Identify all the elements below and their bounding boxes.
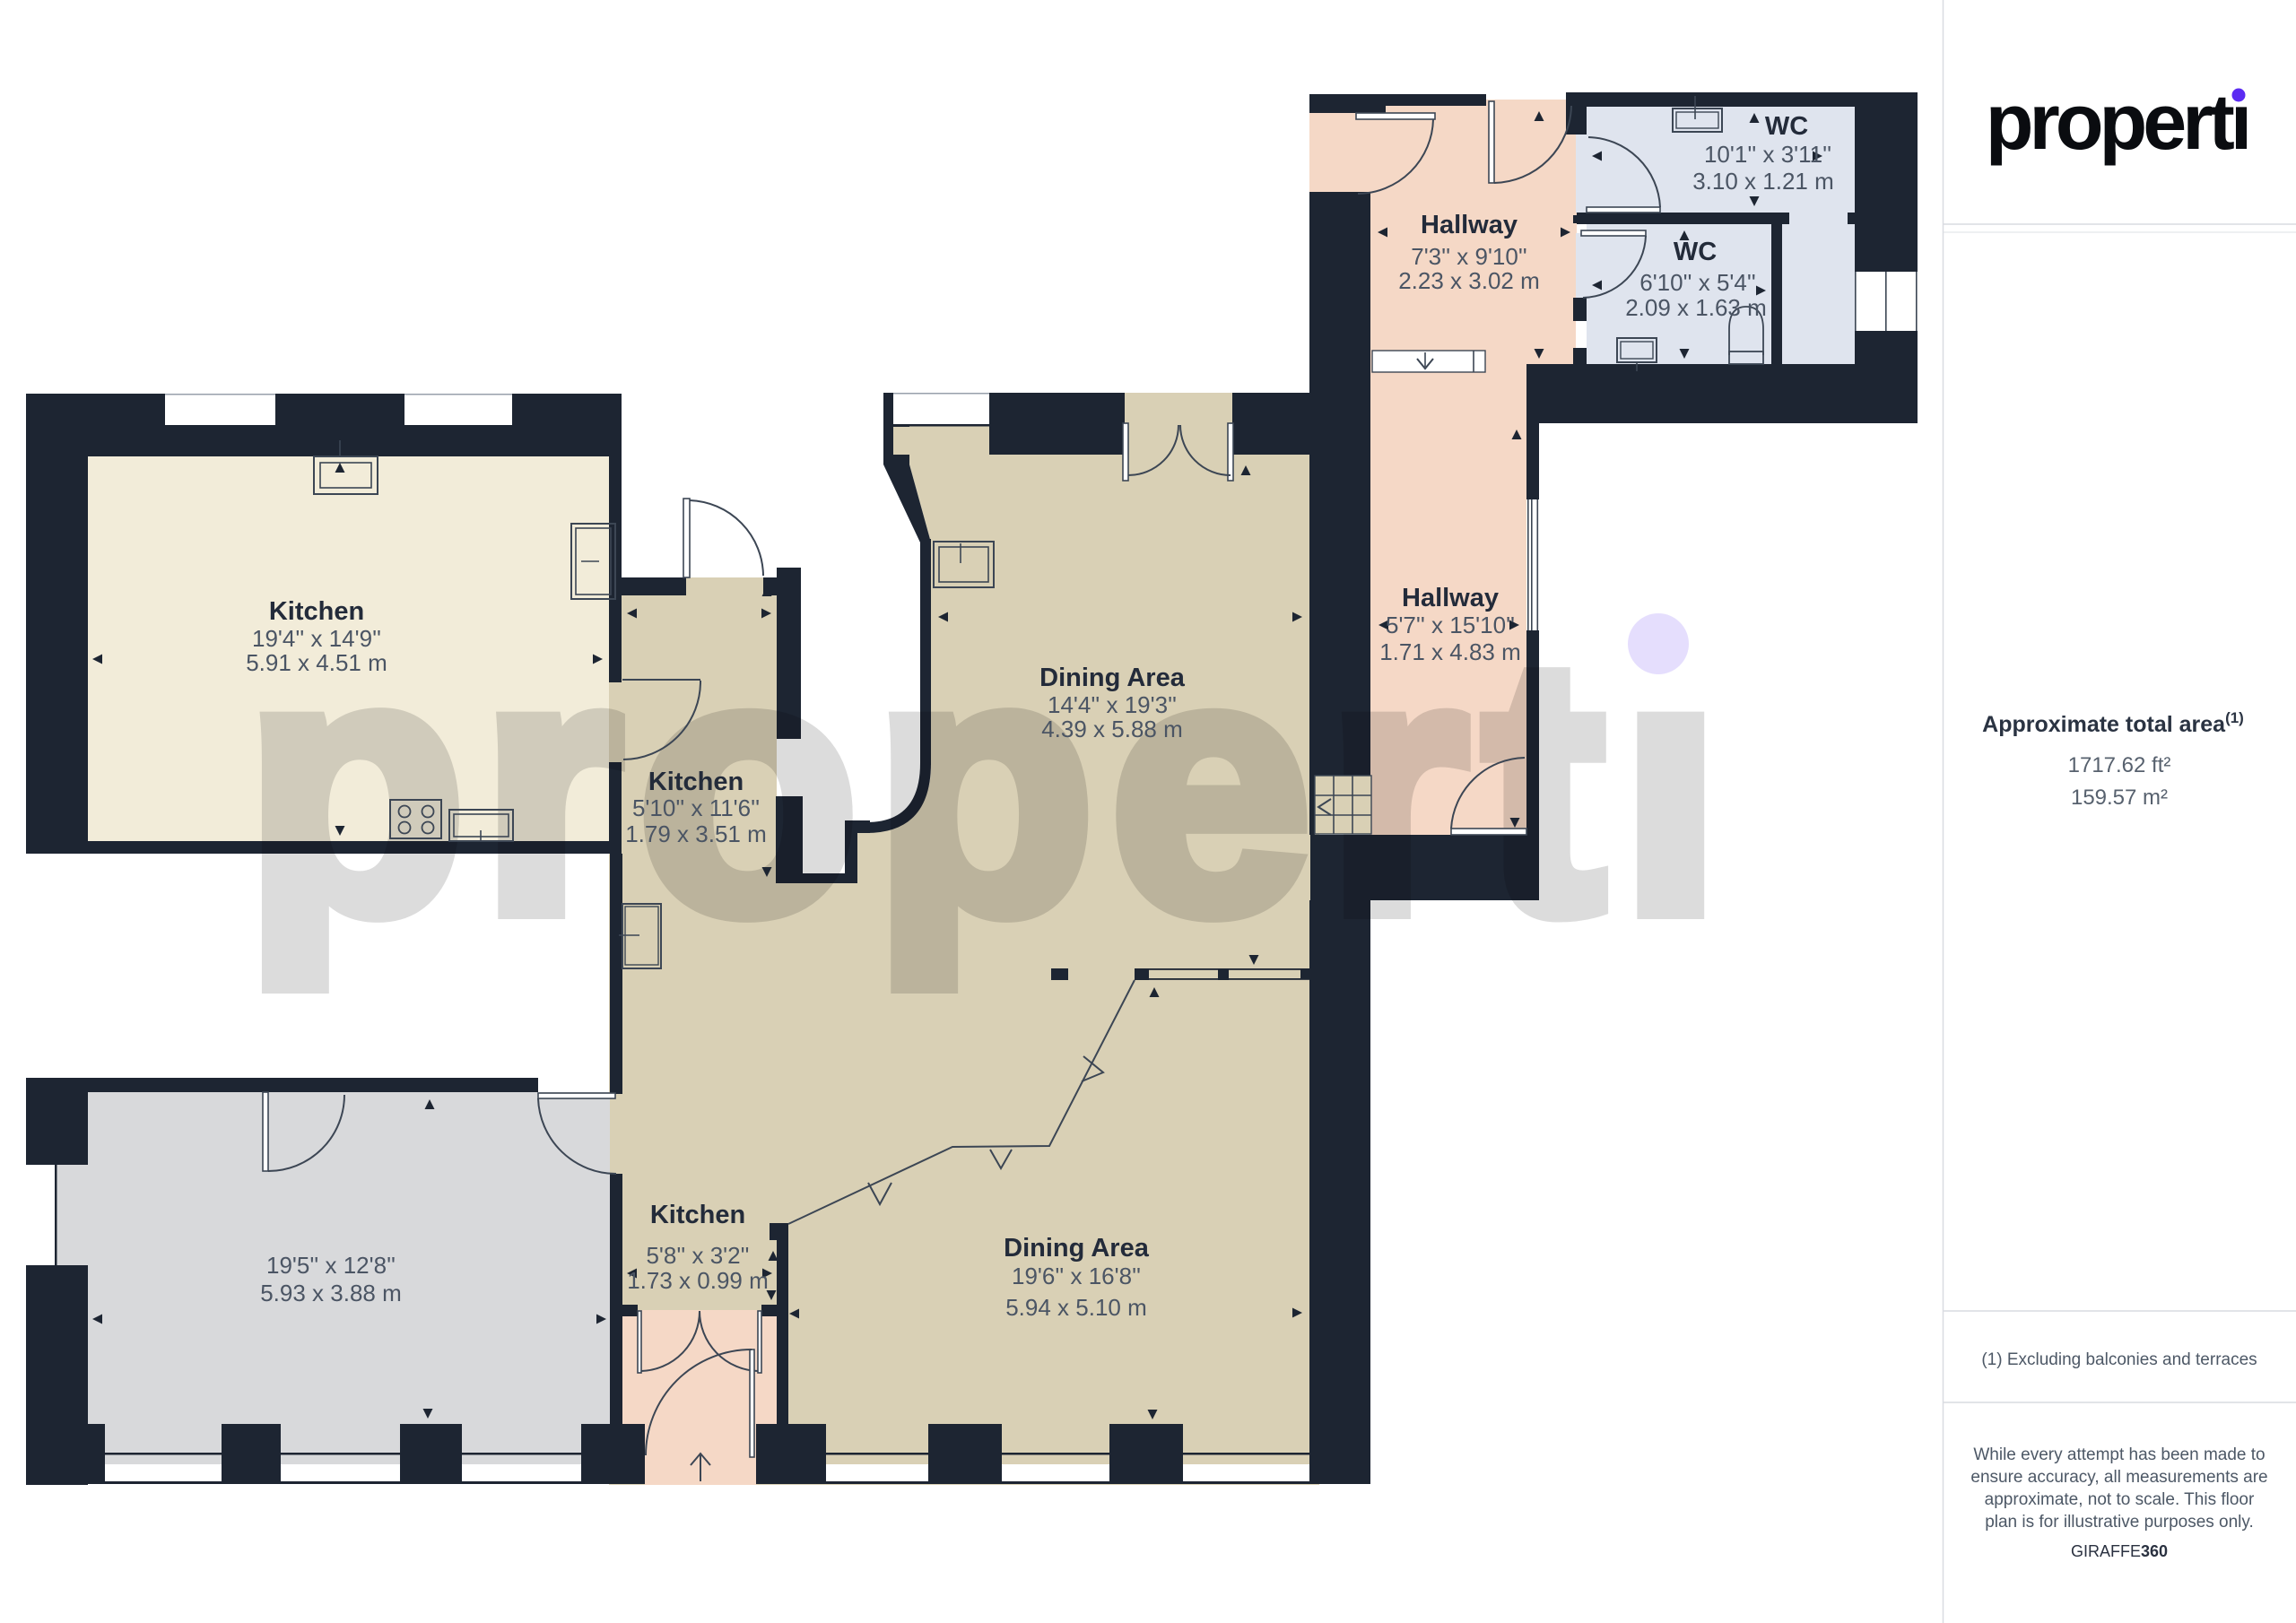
svg-text:ensure accuracy, all measureme: ensure accuracy, all measurements are <box>1970 1468 2267 1487</box>
svg-text:1.71 x 4.83 m: 1.71 x 4.83 m <box>1379 638 1521 665</box>
svg-text:19'6'' x 16'8'': 19'6'' x 16'8'' <box>1012 1263 1141 1289</box>
svg-text:1717.62 ft²: 1717.62 ft² <box>2068 753 2171 777</box>
svg-text:3.10 x 1.21 m: 3.10 x 1.21 m <box>1692 168 1834 195</box>
svg-text:159.57 m²: 159.57 m² <box>2071 785 2168 810</box>
svg-text:WC: WC <box>1765 112 1808 141</box>
svg-text:5'10'' x 11'6'': 5'10'' x 11'6'' <box>632 794 760 821</box>
svg-text:5.94 x 5.10 m: 5.94 x 5.10 m <box>1005 1294 1147 1321</box>
svg-text:Approximate total area(1): Approximate total area(1) <box>1982 709 2244 737</box>
svg-text:7'3'' x 9'10'': 7'3'' x 9'10'' <box>1411 243 1527 270</box>
svg-text:(1) Excluding balconies and te: (1) Excluding balconies and terraces <box>1981 1350 2257 1369</box>
svg-text:19'5'' x 12'8'': 19'5'' x 12'8'' <box>266 1252 396 1279</box>
svg-text:plan is for illustrative purpo: plan is for illustrative purposes only. <box>1985 1513 2254 1532</box>
svg-text:1.79 x 3.51 m: 1.79 x 3.51 m <box>625 820 767 847</box>
svg-text:Kitchen: Kitchen <box>650 1201 745 1229</box>
svg-text:approximate, not to scale. Thi: approximate, not to scale. This floor <box>1985 1490 2255 1509</box>
svg-text:2.23 x 3.02 m: 2.23 x 3.02 m <box>1398 267 1540 294</box>
svg-text:1.73 x 0.99 m: 1.73 x 0.99 m <box>627 1267 769 1294</box>
svg-text:5'8'' x 3'2'': 5'8'' x 3'2'' <box>646 1242 749 1269</box>
svg-text:While every attempt has been m: While every attempt has been made to <box>1973 1445 2265 1464</box>
svg-text:Kitchen: Kitchen <box>648 768 744 796</box>
svg-text:10'1'' x 3'11'': 10'1'' x 3'11'' <box>1704 141 1831 168</box>
svg-text:5.93 x 3.88 m: 5.93 x 3.88 m <box>260 1280 402 1306</box>
svg-text:5.91 x 4.51 m: 5.91 x 4.51 m <box>246 649 387 676</box>
svg-text:19'4'' x 14'9'': 19'4'' x 14'9'' <box>252 625 381 652</box>
svg-text:propertı: propertı <box>1986 77 2248 166</box>
svg-text:Dining Area: Dining Area <box>1004 1234 1150 1263</box>
svg-text:GIRAFFE360: GIRAFFE360 <box>2071 1542 2168 1560</box>
svg-text:Hallway: Hallway <box>1402 584 1499 612</box>
svg-text:Hallway: Hallway <box>1421 211 1518 239</box>
svg-text:6'10'' x 5'4'': 6'10'' x 5'4'' <box>1639 269 1756 296</box>
svg-text:4.39 x 5.88 m: 4.39 x 5.88 m <box>1041 716 1183 742</box>
svg-text:WC: WC <box>1674 238 1717 266</box>
svg-text:Dining Area: Dining Area <box>1039 664 1186 692</box>
svg-text:14'4'' x 19'3'': 14'4'' x 19'3'' <box>1048 691 1177 718</box>
svg-text:Kitchen: Kitchen <box>269 597 364 626</box>
svg-text:2.09 x 1.63 m: 2.09 x 1.63 m <box>1625 294 1767 321</box>
svg-text:5'7'' x 15'10'': 5'7'' x 15'10'' <box>1386 612 1515 638</box>
